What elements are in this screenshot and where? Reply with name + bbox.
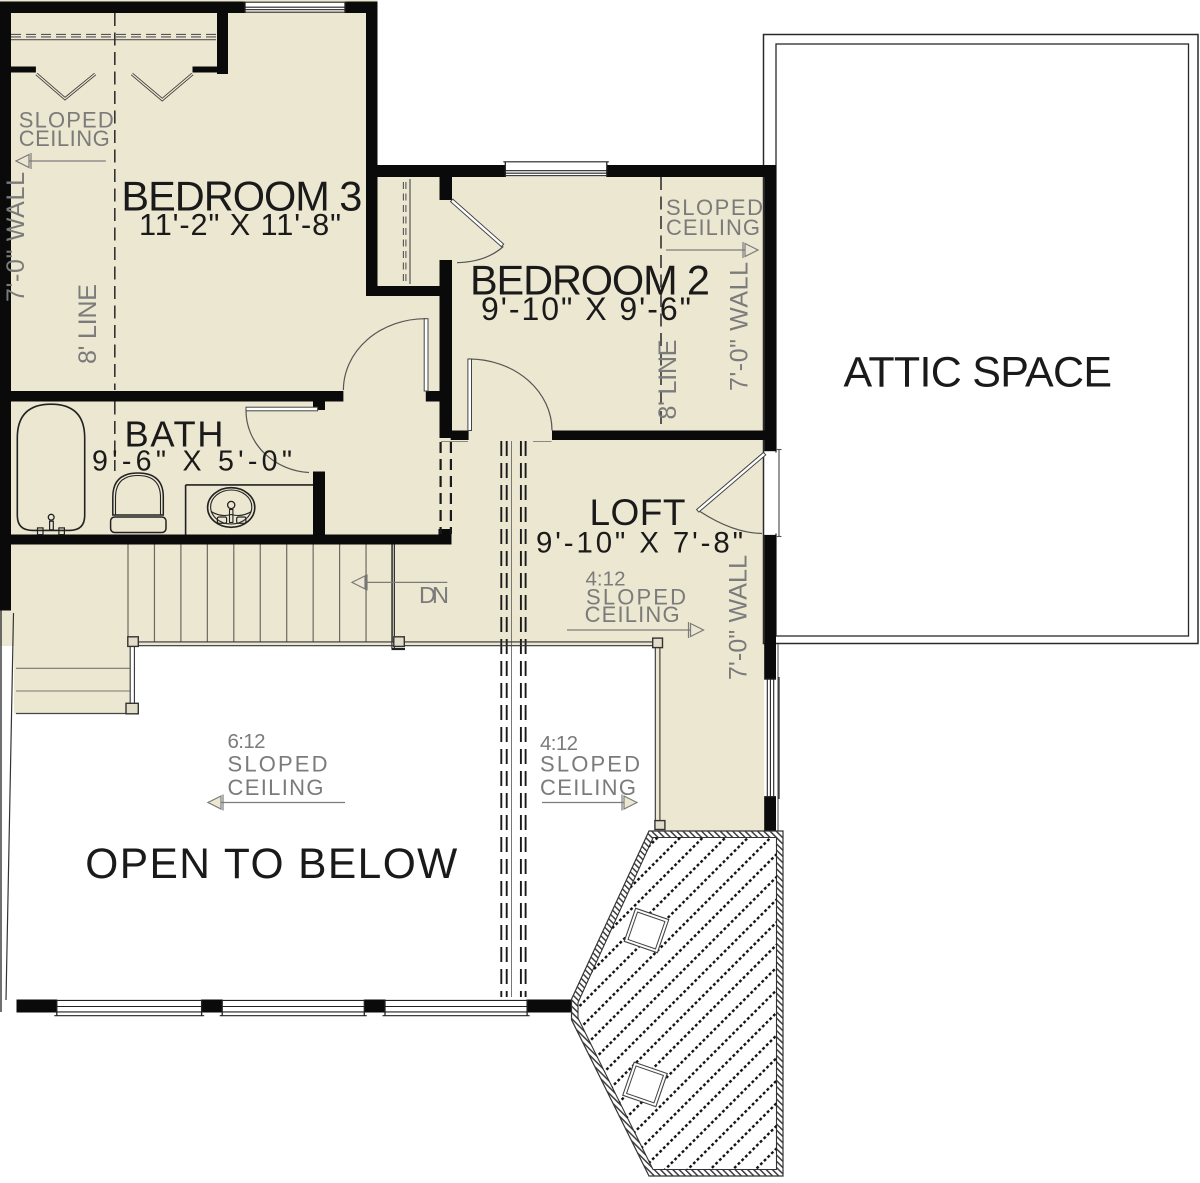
svg-text:CEILING: CEILING bbox=[19, 126, 110, 151]
svg-text:CEILING: CEILING bbox=[585, 602, 680, 627]
svg-text:6:12: 6:12 bbox=[228, 730, 266, 753]
svg-text:9'-10" X 9'-6": 9'-10" X 9'-6" bbox=[481, 291, 691, 327]
svg-text:11'-2" X 11'-8": 11'-2" X 11'-8" bbox=[139, 207, 341, 242]
svg-text:8' LINE: 8' LINE bbox=[654, 340, 682, 420]
svg-text:7'-0" WALL: 7'-0" WALL bbox=[725, 555, 753, 680]
svg-text:DN: DN bbox=[419, 582, 449, 608]
svg-text:OPEN TO BELOW: OPEN TO BELOW bbox=[85, 841, 457, 888]
svg-text:7'-0" WALL: 7'-0" WALL bbox=[726, 262, 754, 391]
svg-text:CEILING: CEILING bbox=[666, 215, 760, 240]
svg-text:ATTIC SPACE: ATTIC SPACE bbox=[844, 349, 1113, 397]
svg-text:CEILING: CEILING bbox=[228, 775, 324, 800]
svg-text:9'-6" X 5'-0": 9'-6" X 5'-0" bbox=[92, 446, 292, 478]
svg-text:7'-0" WALL: 7'-0" WALL bbox=[2, 172, 30, 302]
svg-text:8' LINE: 8' LINE bbox=[74, 284, 102, 364]
svg-text:CEILING: CEILING bbox=[540, 775, 636, 800]
